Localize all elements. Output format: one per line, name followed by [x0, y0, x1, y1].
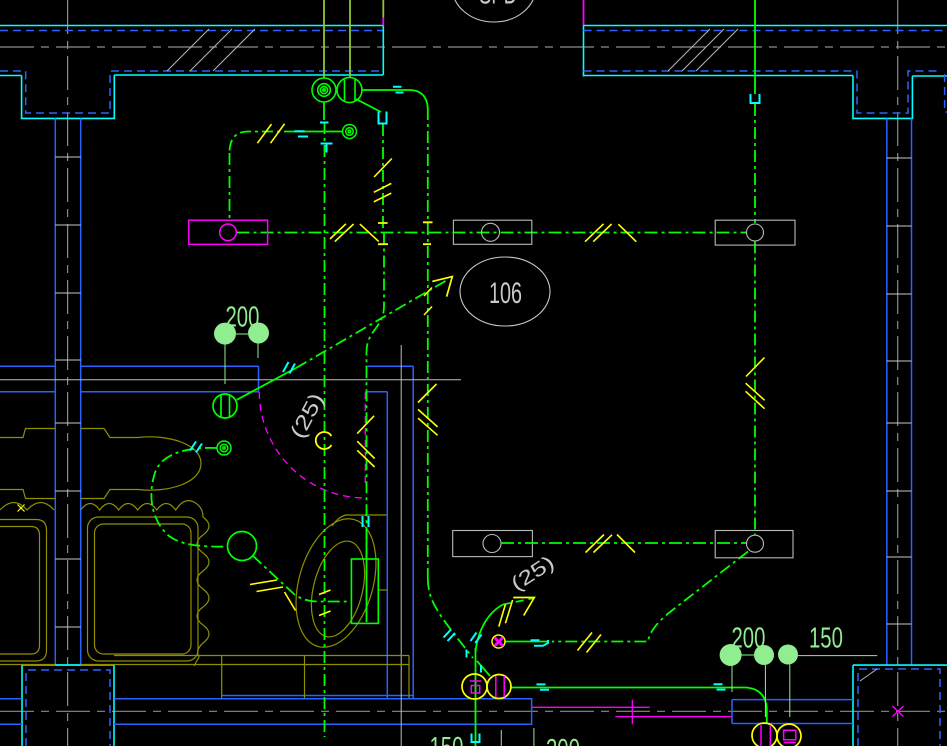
svg-text:150: 150 [430, 732, 464, 746]
svg-text:106: 106 [489, 277, 522, 310]
svg-text:150: 150 [809, 622, 843, 654]
svg-text:200: 200 [546, 734, 580, 746]
svg-text:SPD: SPD [479, 0, 517, 11]
